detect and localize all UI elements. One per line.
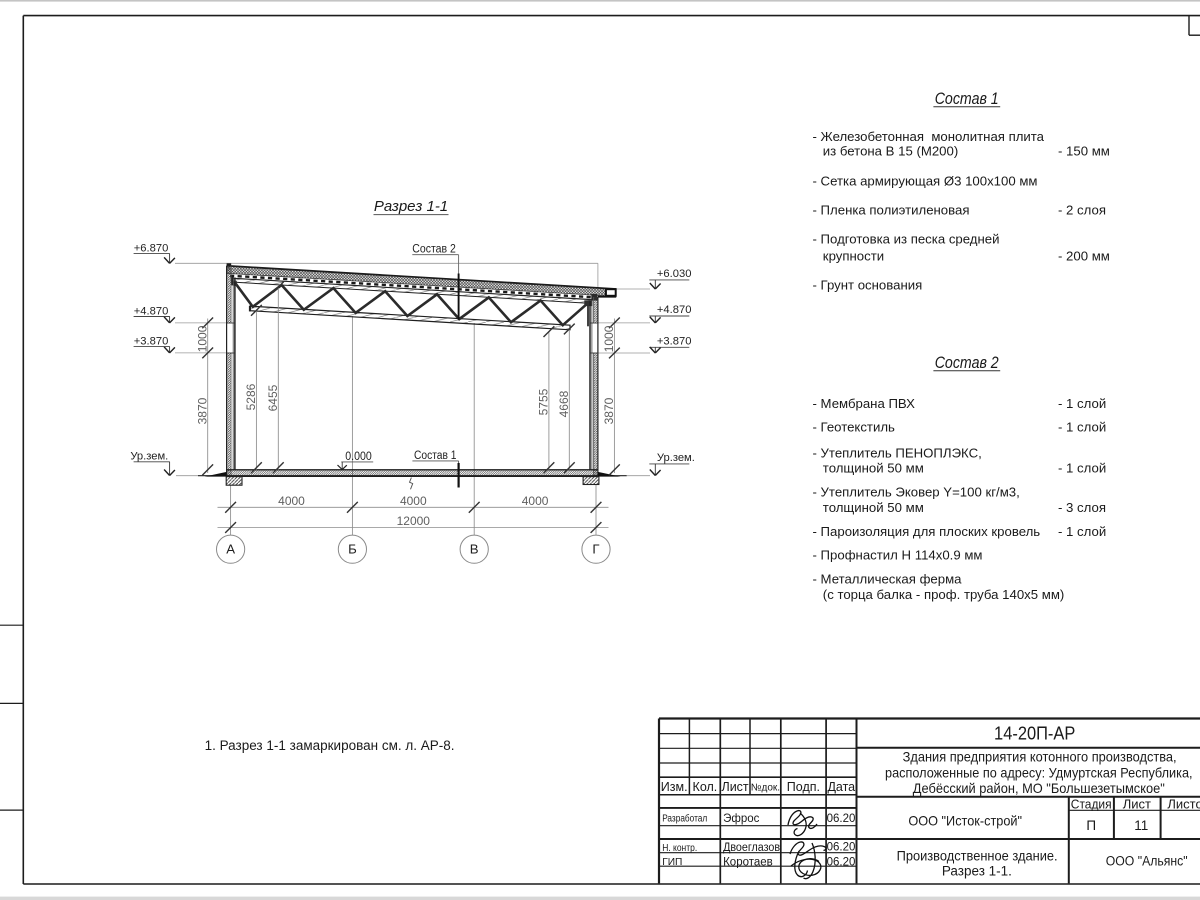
svg-text:1. Разрез 1-1 замаркирован см.: 1. Разрез 1-1 замаркирован см. л. АР-8.	[205, 738, 455, 753]
svg-text:- Железобетонная монолитная п: - Железобетонная монолитная плита	[813, 129, 1045, 144]
svg-text:- Пленка полиэтиленовая: - Пленка полиэтиленовая	[813, 202, 970, 217]
svg-text:Лист: Лист	[1123, 797, 1151, 812]
svg-text:4668: 4668	[557, 390, 571, 417]
svg-text:Изм.: Изм.	[661, 780, 688, 794]
svg-text:3870: 3870	[195, 397, 209, 424]
svg-text:11: 11	[1134, 818, 1148, 833]
svg-text:- Пароизоляция для плоских кро: - Пароизоляция для плоских кровель	[813, 524, 1041, 539]
svg-text:- 3 слоя: - 3 слоя	[1058, 500, 1106, 515]
svg-text:3870: 3870	[602, 397, 616, 424]
svg-text:расположенные по адресу: Удмур: расположенные по адресу: Удмуртская Респ…	[885, 765, 1193, 781]
svg-text:Эфрос: Эфрос	[723, 813, 760, 825]
svg-text:06.20: 06.20	[827, 813, 856, 825]
svg-text:06.20: 06.20	[827, 842, 856, 854]
svg-text:из бетона В 15 (М200): из бетона В 15 (М200)	[823, 143, 958, 158]
svg-text:Состав 1: Состав 1	[935, 90, 999, 108]
svg-text:- Утеплитель ПЕНОПЛЭКС,: - Утеплитель ПЕНОПЛЭКС,	[813, 445, 982, 460]
svg-text:+4.870: +4.870	[134, 306, 169, 318]
svg-text:ООО "Исток-строй": ООО "Исток-строй"	[908, 814, 1022, 829]
svg-text:Состав 2: Состав 2	[935, 354, 999, 372]
svg-text:- 1 слой: - 1 слой	[1058, 461, 1106, 476]
svg-text:- 200 мм: - 200 мм	[1058, 248, 1110, 263]
svg-text:- 1 слой: - 1 слой	[1058, 524, 1106, 539]
svg-text:+6.870: +6.870	[134, 243, 169, 255]
svg-text:Стадия: Стадия	[1071, 797, 1112, 812]
svg-text:4000: 4000	[522, 494, 549, 508]
svg-text:Разработал: Разработал	[662, 813, 707, 825]
svg-text:14-20П-АР: 14-20П-АР	[994, 723, 1075, 744]
svg-text:- Подготовка из песка средней: - Подготовка из песка средней	[813, 231, 1000, 246]
svg-text:Здания предприятия котонного п: Здания предприятия котонного производств…	[903, 749, 1177, 765]
svg-text:Дебёсский район, МО "Большезет: Дебёсский район, МО "Большезетымское"	[913, 780, 1165, 796]
svg-text:крупности: крупности	[823, 248, 884, 263]
svg-text:- 1 слой: - 1 слой	[1058, 420, 1106, 435]
svg-text:- Сетка армирующая Ø3 100х100: - Сетка армирующая Ø3 100х100 мм	[813, 173, 1038, 188]
svg-text:4000: 4000	[278, 494, 305, 508]
svg-text:А: А	[226, 542, 235, 557]
svg-text:Состав 2: Состав 2	[412, 243, 456, 255]
svg-text:В: В	[470, 542, 479, 557]
svg-text:12000: 12000	[397, 514, 431, 528]
svg-text:Кол.: Кол.	[693, 780, 718, 794]
svg-text:Коротаев: Коротаев	[723, 857, 773, 869]
svg-text:5755: 5755	[537, 388, 551, 415]
svg-text:№док.: №док.	[751, 782, 780, 793]
svg-text:(с торца балка - проф. труба 1: (с торца балка - проф. труба 140х5 мм)	[823, 587, 1064, 602]
svg-text:ООО "Альянс": ООО "Альянс"	[1106, 853, 1188, 868]
svg-text:Н. контр.: Н. контр.	[662, 843, 697, 854]
svg-text:- Металлическая ферма: - Металлическая ферма	[813, 572, 963, 587]
svg-text:+6.030: +6.030	[657, 268, 692, 280]
svg-text:1000: 1000	[602, 325, 616, 352]
svg-text:Подп.: Подп.	[787, 780, 820, 794]
svg-text:- 2 слоя: - 2 слоя	[1058, 202, 1106, 217]
svg-text:Ур.зем.: Ур.зем.	[657, 452, 695, 464]
svg-text:Дата: Дата	[827, 780, 855, 794]
svg-text:- 150 мм: - 150 мм	[1058, 143, 1110, 158]
svg-text:0.000: 0.000	[345, 451, 372, 463]
svg-text:5286: 5286	[244, 383, 258, 410]
svg-text:Г: Г	[592, 542, 599, 557]
svg-text:- 1 слой: - 1 слой	[1058, 396, 1106, 411]
svg-text:Лист: Лист	[722, 780, 749, 794]
svg-text:+3.870: +3.870	[134, 336, 169, 348]
svg-text:Разрез 1-1.: Разрез 1-1.	[942, 863, 1012, 878]
svg-text:Двоеглазов: Двоеглазов	[723, 842, 780, 854]
svg-text:П: П	[1086, 818, 1096, 833]
svg-text:толщиной 50 мм: толщиной 50 мм	[823, 500, 924, 515]
svg-text:4000: 4000	[400, 494, 427, 508]
svg-text:06.20: 06.20	[827, 857, 856, 869]
svg-text:Состав 1: Состав 1	[414, 450, 457, 462]
svg-text:+4.870: +4.870	[657, 304, 692, 316]
svg-text:ГИП: ГИП	[662, 857, 682, 868]
svg-text:6455: 6455	[266, 384, 280, 411]
svg-text:- Профнастил Н 114х0.9 мм: - Профнастил Н 114х0.9 мм	[813, 548, 983, 563]
svg-text:Производственное здание.: Производственное здание.	[897, 849, 1058, 864]
svg-text:Разрез 1-1: Разрез 1-1	[374, 198, 448, 215]
svg-text:толщиной 50 мм: толщиной 50 мм	[823, 461, 924, 476]
svg-text:Листов: Листов	[1167, 797, 1200, 812]
svg-text:Б: Б	[348, 542, 357, 557]
svg-text:- Утеплитель Эковер Y=100 кг/м: - Утеплитель Эковер Y=100 кг/м3,	[813, 485, 1020, 500]
svg-text:Ур.зем.: Ур.зем.	[130, 451, 168, 463]
svg-text:- Грунт основания: - Грунт основания	[813, 277, 923, 292]
svg-text:- Мембрана ПВХ: - Мембрана ПВХ	[813, 396, 916, 411]
svg-text:+3.870: +3.870	[657, 336, 692, 348]
svg-text:- Геотекстиль: - Геотекстиль	[813, 420, 896, 435]
svg-text:1000: 1000	[195, 325, 209, 352]
